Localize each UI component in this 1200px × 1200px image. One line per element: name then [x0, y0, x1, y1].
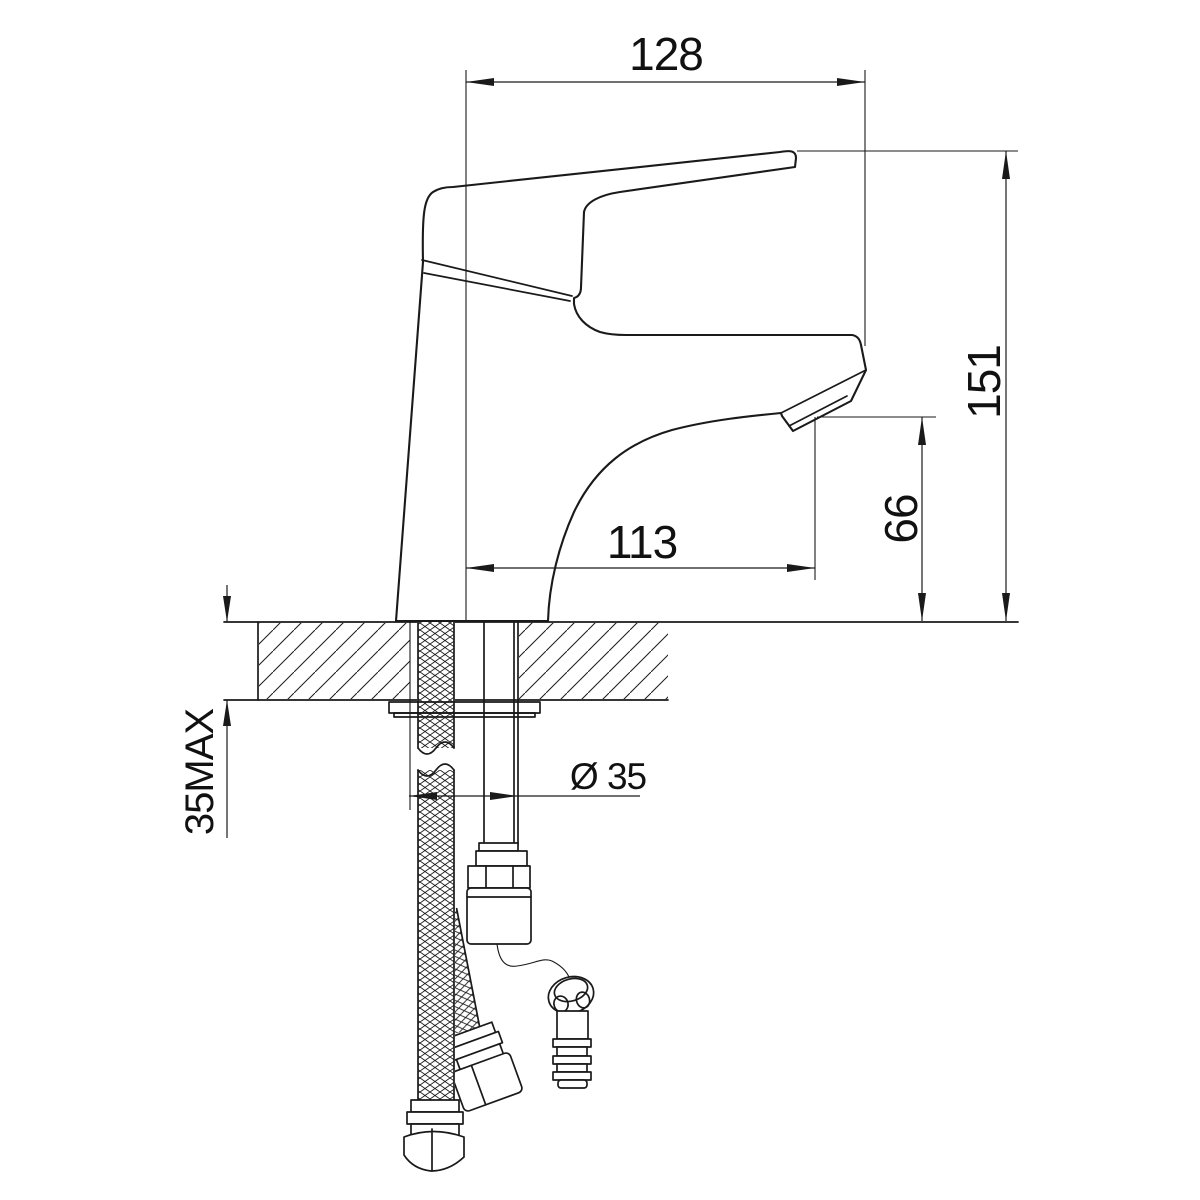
drawing-page: 128 151 113 66 35MAX Ø 35 — [0, 0, 1200, 1200]
background — [0, 0, 1200, 1200]
hose-left-collar — [407, 1100, 463, 1136]
dim-label-d35: Ø 35 — [570, 756, 647, 797]
countertop-hatch-right — [519, 623, 668, 699]
countertop-hatch-left — [259, 623, 410, 699]
dim-label-128: 128 — [629, 28, 703, 80]
drawing-canvas: 128 151 113 66 35MAX Ø 35 — [0, 0, 1200, 1200]
dim-label-113: 113 — [607, 516, 677, 568]
dim-label-66: 66 — [875, 494, 927, 543]
shank-fitting — [467, 843, 531, 944]
dim-label-35max: 35MAX — [178, 709, 222, 835]
dim-label-151: 151 — [958, 345, 1010, 419]
